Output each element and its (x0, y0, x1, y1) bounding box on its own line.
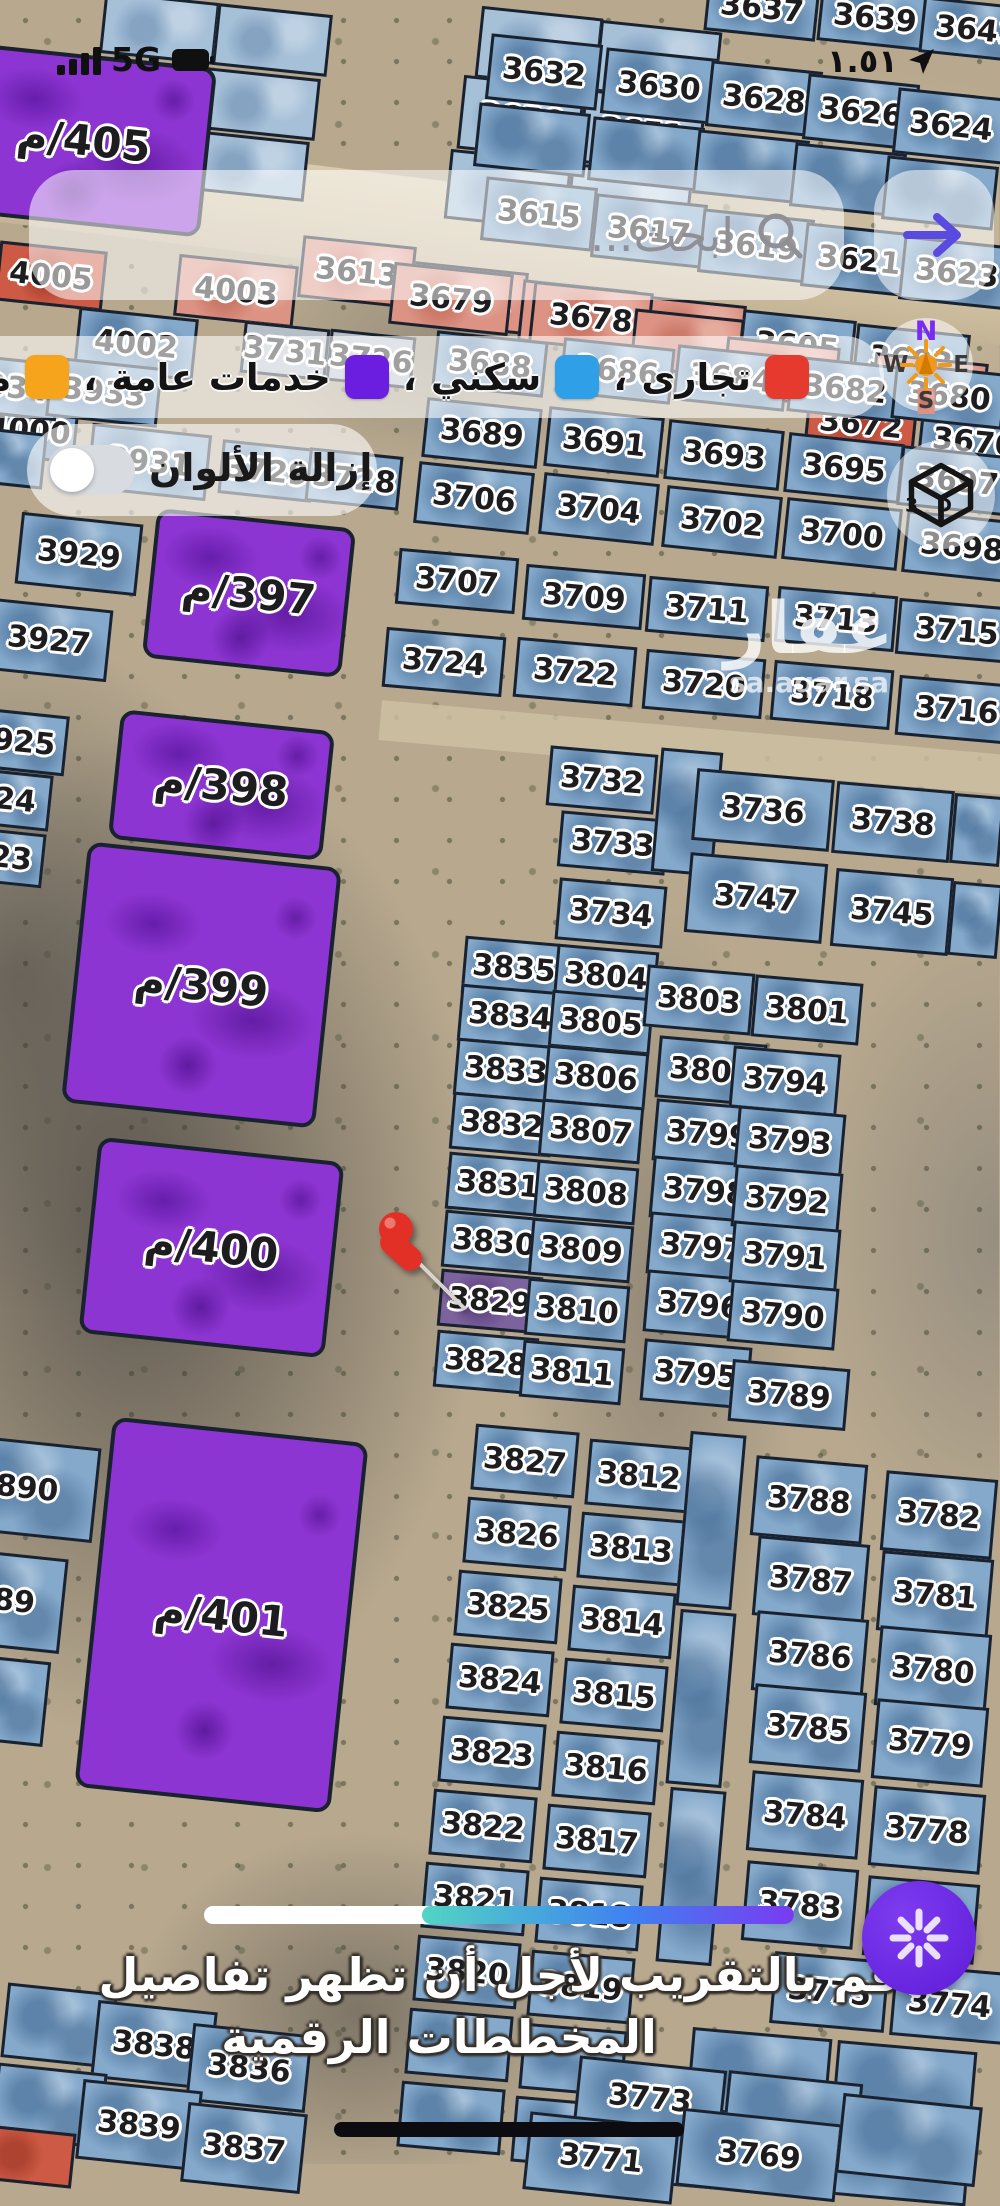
plot-cell[interactable] (397, 2081, 506, 2156)
plot-number: 23 (0, 838, 35, 877)
plot-number: 3791 (743, 1235, 829, 1277)
back-arrow-button[interactable] (875, 170, 995, 300)
plot-number: 3823 (450, 1732, 536, 1774)
plot-number: 3641 (935, 8, 1000, 52)
plot-cell[interactable]: 23 (0, 828, 48, 889)
plot-cell[interactable] (666, 1608, 737, 1787)
plot-cell[interactable]: 24 (0, 768, 55, 831)
plot-number: 397/م (181, 562, 319, 625)
plot-number: 3805 (559, 1001, 645, 1043)
plot-number: 3812 (597, 1455, 683, 1497)
plot-cell[interactable]: 3745 (831, 868, 955, 956)
plot-cell[interactable]: 3808 (534, 1159, 641, 1225)
plot-cell[interactable]: 3929 (16, 512, 145, 596)
plot-number: 3733 (571, 822, 657, 864)
plot-number: 3929 (37, 532, 124, 576)
plot-number: 3801 (765, 989, 851, 1031)
plot-cell[interactable]: 3822 (429, 1789, 538, 1864)
plot-number: 3734 (569, 892, 655, 934)
plot-number: 3628 (722, 77, 809, 121)
plot-number: 3806 (554, 1056, 640, 1098)
plot-cell[interactable]: 89 (0, 1549, 70, 1654)
plot-cell[interactable]: 3790 (728, 1279, 841, 1350)
plot-number: 3813 (589, 1528, 675, 1570)
legend-label: مرافق وم (0, 356, 12, 399)
plot-number: 3815 (572, 1674, 658, 1716)
legend: تجارى،سكني،خدمات عامة،مرافق وم (0, 336, 870, 418)
plot-cell[interactable]: 3738 (832, 781, 956, 863)
status-bar-left: 5G (58, 40, 216, 79)
plot-cell[interactable]: 3807 (539, 1098, 646, 1164)
plot-number: 3839 (97, 2103, 184, 2147)
spinner-starburst-icon (889, 1907, 951, 1969)
plot-number: 3927 (7, 618, 94, 662)
plot-number: 3834 (468, 995, 554, 1037)
home-indicator[interactable] (335, 2122, 685, 2137)
plot-cell[interactable]: 3812 (585, 1439, 694, 1514)
network-type-label: 5G (112, 40, 162, 79)
plot-cell[interactable]: 3707 (396, 548, 520, 614)
plot-number: 3624 (909, 104, 996, 148)
plot-number: 925 (0, 721, 58, 762)
plot-cell[interactable] (474, 102, 592, 177)
plot-number: 3769 (717, 2133, 804, 2177)
plot-number: 24 (0, 780, 39, 819)
plot-cell[interactable]: 3827 (471, 1424, 580, 1499)
compass-south-label: S (919, 388, 936, 414)
plot-cell[interactable]: 3803 (644, 964, 757, 1035)
plot-number: 3827 (483, 1440, 569, 1482)
plot-cell[interactable]: 3785 (750, 1683, 869, 1772)
loading-progress-bar (205, 1906, 795, 1924)
loading-fab-button[interactable] (863, 1881, 977, 1995)
plot-cell[interactable]: 3734 (556, 877, 669, 948)
plot-cell[interactable]: 3784 (747, 1770, 866, 1859)
plot-number: 3779 (888, 1722, 974, 1764)
plot-cell[interactable]: 3704 (539, 472, 661, 546)
plot-number: 3630 (617, 64, 704, 108)
plot-cell[interactable]: 3809 (529, 1217, 636, 1283)
legend-label: خدمات عامة (112, 356, 331, 399)
plot-cell[interactable]: 3783 (742, 1860, 861, 1949)
plot-number: 3828 (444, 1341, 530, 1383)
plot-cell[interactable]: 3706 (414, 461, 536, 535)
plot-cell[interactable]: 3782 (881, 1470, 1000, 1559)
status-bar-right: ١.٥١ (828, 42, 937, 80)
plot-cell[interactable]: 3825 (454, 1570, 563, 1645)
plot-cell[interactable] (0, 1654, 52, 1747)
compass-east-label: E (954, 352, 970, 378)
plot-cell[interactable]: 3826 (463, 1497, 572, 1572)
plot-number: 3706 (432, 476, 519, 520)
remove-colors-toggle[interactable] (48, 445, 136, 495)
svg-text:3: 3 (907, 495, 919, 516)
plot-cell[interactable]: 3816 (552, 1731, 661, 1806)
plot-cell[interactable]: 3811 (520, 1339, 627, 1405)
3d-view-button[interactable]: 3 D (888, 441, 996, 549)
plot-cell[interactable]: 3722 (514, 637, 639, 707)
plot-number: 3822 (441, 1805, 527, 1847)
legend-color-swatch (766, 355, 810, 399)
plot-number: 3790 (741, 1294, 827, 1336)
plot-cell[interactable]: 3788 (751, 1455, 870, 1544)
plot-number: 3824 (458, 1659, 544, 1701)
plot-number: 3745 (850, 891, 936, 933)
arrow-right-icon (902, 205, 968, 265)
search-icon (753, 207, 809, 263)
plot-number: 3715 (915, 610, 1000, 652)
plot-number: 3833 (464, 1049, 550, 1091)
plot-cell[interactable]: 3736 (692, 768, 836, 852)
legend-item: مرافق وم (0, 355, 70, 399)
legend-item: سكني (432, 355, 600, 399)
plot-cell[interactable]: 3632 (486, 33, 604, 110)
plot-cell[interactable]: 3709 (523, 564, 647, 630)
legend-separator: ، (614, 356, 628, 399)
plot-number: 3825 (466, 1586, 552, 1628)
plot-cell[interactable]: 3747 (685, 852, 829, 944)
plot-number: 3691 (562, 420, 649, 464)
toggle-knob[interactable] (51, 448, 95, 492)
legend-color-swatch (346, 355, 390, 399)
legend-separator: ، (404, 356, 418, 399)
plot-cell[interactable]: 3823 (438, 1716, 547, 1791)
legend-label: سكني (432, 356, 542, 399)
plot-cell[interactable]: 3817 (543, 1804, 652, 1879)
plot-number: 3787 (769, 1559, 855, 1601)
plot-number: 3795 (654, 1353, 740, 1395)
plot-cell[interactable]: 397/م (143, 508, 358, 678)
plot-cell[interactable] (213, 3, 334, 77)
plot-number: 3637 (720, 0, 807, 30)
plot-cell[interactable]: 3824 (446, 1643, 555, 1718)
plot-number: 3786 (768, 1634, 854, 1676)
map-pin-icon[interactable] (370, 1208, 480, 1323)
plot-number: 3810 (535, 1289, 621, 1331)
plot-cell[interactable]: 3814 (568, 1585, 677, 1660)
cellular-signal-icon (58, 45, 102, 75)
plot-cell[interactable]: 890 (0, 1433, 103, 1542)
legend-color-swatch (556, 355, 600, 399)
plot-number: 3809 (539, 1229, 625, 1271)
plot-cell[interactable]: 3837 (181, 2102, 309, 2194)
legend-item: تجارى (642, 355, 810, 399)
plot-number: 3811 (530, 1351, 616, 1393)
plot-number: 3700 (800, 512, 887, 556)
plot-cell[interactable]: 925 (0, 708, 71, 777)
plot-cell[interactable]: 3724 (383, 627, 508, 697)
plot-number: 3837 (202, 2126, 289, 2170)
search-bar[interactable]: ابحث... (30, 170, 845, 300)
plot-number: 3702 (680, 500, 767, 544)
plot-number: 3817 (555, 1820, 641, 1862)
plot-number: 3826 (475, 1513, 561, 1555)
plot-number: 3794 (743, 1060, 829, 1102)
plot-cell[interactable] (201, 67, 322, 141)
compass-sun-icon (901, 339, 953, 391)
plot-number: 3808 (544, 1171, 630, 1213)
progress-fill (423, 1906, 795, 1924)
plot-cell[interactable]: 3815 (560, 1658, 669, 1733)
plot-cell[interactable]: 400/م (79, 1136, 345, 1358)
watermark-title: عقار (700, 592, 920, 664)
plot-number: 3782 (897, 1494, 983, 1536)
plot-number: 3695 (802, 446, 889, 490)
plot-number: 399/م (133, 954, 271, 1017)
plot-number: 3709 (542, 576, 628, 618)
plot-number: 3785 (766, 1707, 852, 1749)
plot-number: 3781 (893, 1574, 979, 1616)
zoom-hint-line2: المخططات الرقمية (0, 2010, 880, 2064)
plot-number: 405/م (16, 109, 154, 172)
compass-button[interactable]: N W E S (880, 318, 974, 412)
plot-number: 3788 (767, 1479, 853, 1521)
3d-cube-icon: 3 D (907, 460, 977, 530)
plot-number: 3773 (608, 2076, 695, 2120)
plot-cell[interactable]: 3801 (752, 974, 865, 1045)
plot-cell[interactable]: 398/م (108, 709, 335, 861)
plot-number: 3724 (402, 641, 488, 683)
plot-number: 3771 (559, 2136, 646, 2180)
plot-number: 890 (0, 1467, 61, 1508)
plot-number: 3789 (747, 1374, 833, 1416)
plot-number: 3722 (533, 651, 619, 693)
plot-number: 3803 (657, 979, 743, 1021)
plot-number: 3716 (915, 689, 1000, 731)
plot-cell[interactable]: 3810 (525, 1277, 632, 1343)
battery-icon (172, 47, 216, 73)
plot-cell[interactable]: 401/م (75, 1417, 369, 1814)
legend-label: تجارى (642, 356, 752, 399)
plot-number: 3732 (560, 759, 646, 801)
watermark: عقار sa.aqar.sa (700, 592, 920, 699)
plot-number: 3816 (564, 1747, 650, 1789)
plots-layer: 3656365136373639364136323630362836263624… (0, 0, 1000, 2164)
plot-number: 3784 (763, 1794, 849, 1836)
plot-cell[interactable]: 3789 (729, 1359, 852, 1431)
plot-cell[interactable]: 3702 (662, 485, 784, 559)
plot-number: 3835 (472, 947, 558, 989)
plot-cell[interactable]: 3624 (893, 87, 1000, 164)
plot-cell[interactable]: 3769 (676, 2108, 843, 2202)
plot-number: 3626 (819, 90, 906, 134)
legend-color-swatch (26, 355, 70, 399)
plot-cell[interactable] (948, 881, 1000, 959)
plot-number: 3832 (460, 1103, 546, 1145)
plot-cell[interactable]: 3693 (664, 419, 786, 491)
clock-time: ١.٥١ (828, 42, 899, 80)
plot-number: 3831 (456, 1163, 542, 1205)
remove-colors-label: إزالة الألوان (150, 446, 373, 490)
watermark-subtitle: sa.aqar.sa (700, 666, 920, 699)
svg-text:D: D (938, 495, 953, 516)
legend-item: خدمات عامة (112, 355, 389, 399)
plot-number: 3736 (721, 789, 807, 831)
zoom-hint-line1: قم بالتقريب لأجل أن تظهر تفاصيل (0, 1948, 1000, 2002)
plot-number: 3778 (885, 1809, 971, 1851)
plot-cell[interactable]: 3630 (601, 47, 719, 124)
plot-number: 400/م (143, 1216, 281, 1279)
plot-number: 3814 (580, 1601, 666, 1643)
plot-cell[interactable]: 3813 (577, 1512, 686, 1587)
plot-number: 3704 (557, 487, 644, 531)
plot-number: 3707 (415, 560, 501, 602)
plot-number: 3678 (549, 296, 636, 340)
plot-number: 3747 (714, 877, 800, 919)
plot-number: 3738 (851, 801, 937, 843)
plot-cell[interactable]: 399/م (62, 841, 343, 1128)
plot-cell[interactable]: 3805 (549, 989, 656, 1055)
plot-number: 3693 (682, 433, 769, 477)
plot-cell[interactable]: 3821 (421, 1862, 530, 1937)
plot-number: 398/م (153, 754, 291, 817)
plot-number: 3780 (891, 1649, 977, 1691)
plot-cell[interactable]: 3700 (782, 497, 904, 571)
plot-cell[interactable]: 3927 (0, 598, 114, 682)
plot-number: 3639 (833, 0, 920, 40)
plot-number: 401/م (153, 1584, 291, 1647)
location-arrow-icon (907, 46, 937, 76)
plot-number: 3792 (745, 1179, 831, 1221)
legend-separator: ، (84, 356, 98, 399)
plot-number: 3632 (502, 50, 589, 94)
plot-cell[interactable] (0, 2122, 78, 2188)
plot-cell[interactable] (950, 793, 1000, 867)
plot-cell[interactable] (836, 2093, 984, 2187)
zoom-hint: قم بالتقريب لأجل أن تظهر تفاصيل المخططات… (0, 1948, 1000, 2064)
plot-cell[interactable]: 3732 (547, 745, 660, 814)
plot-number: 3793 (748, 1120, 834, 1162)
plot-cell[interactable]: 3778 (869, 1785, 988, 1874)
plot-cell[interactable]: 3779 (872, 1698, 991, 1787)
search-input[interactable]: ابحث... (591, 208, 735, 262)
plot-cell[interactable] (656, 1786, 727, 1965)
plot-number: 3807 (549, 1110, 635, 1152)
plot-number: 89 (0, 1581, 38, 1620)
